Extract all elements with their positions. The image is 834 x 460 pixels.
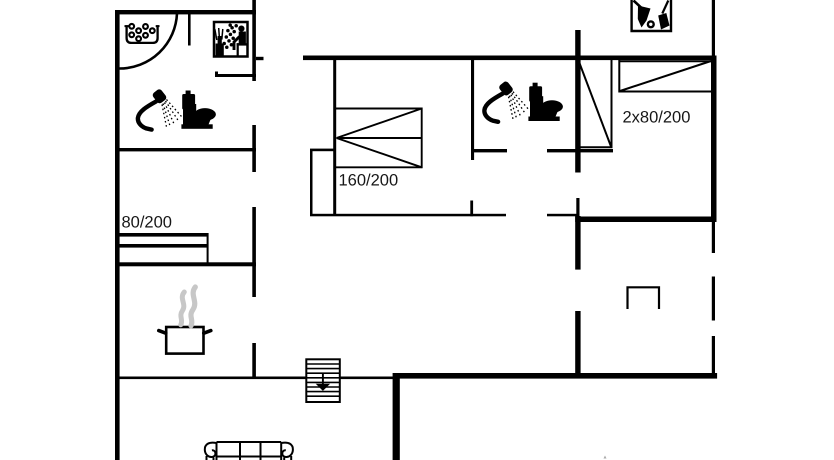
svg-text:2x80/200: 2x80/200 xyxy=(622,109,690,127)
svg-text:80/200: 80/200 xyxy=(121,214,171,232)
svg-text:160/200: 160/200 xyxy=(338,172,398,190)
